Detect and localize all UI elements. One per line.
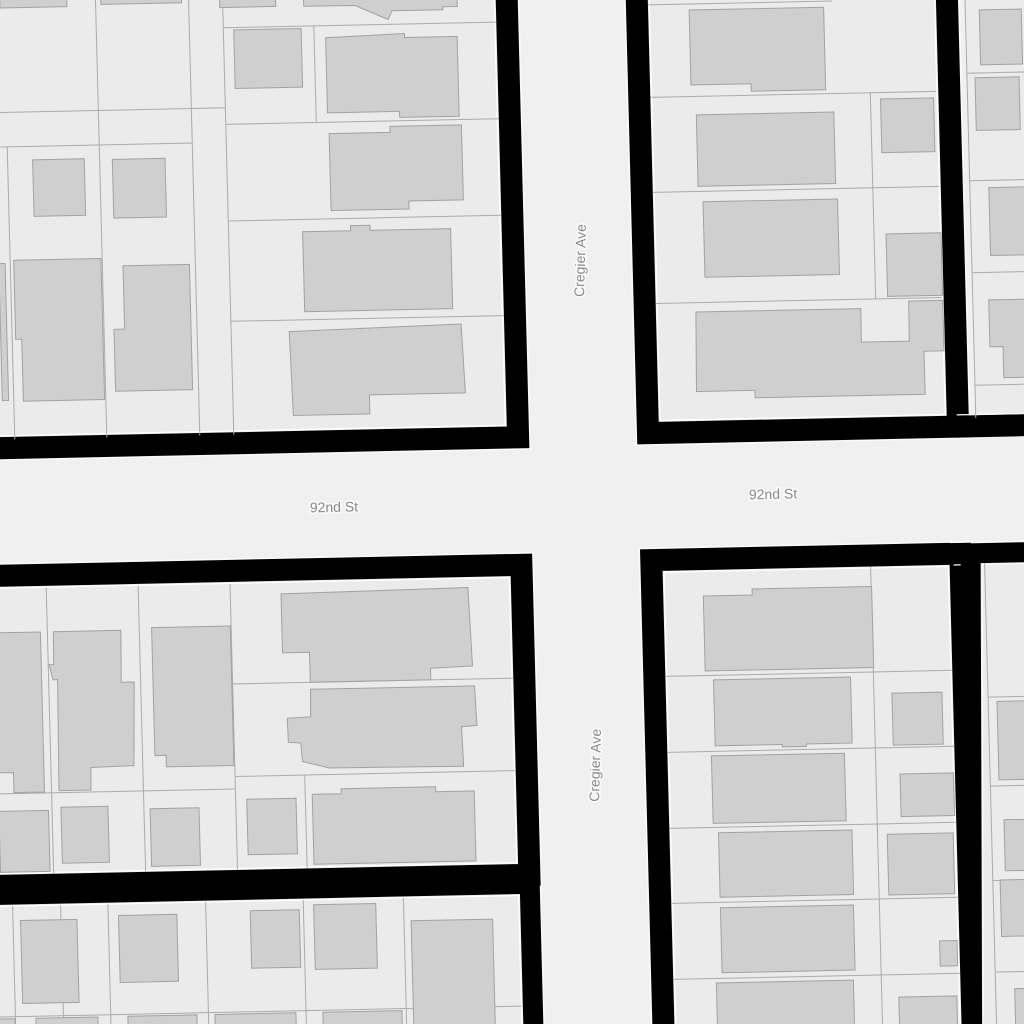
svg-text:Cregier Ave: Cregier Ave bbox=[586, 728, 604, 801]
svg-text:92nd St: 92nd St bbox=[310, 498, 359, 515]
svg-text:Cregier Ave: Cregier Ave bbox=[571, 224, 589, 297]
svg-text:92nd St: 92nd St bbox=[749, 485, 798, 502]
